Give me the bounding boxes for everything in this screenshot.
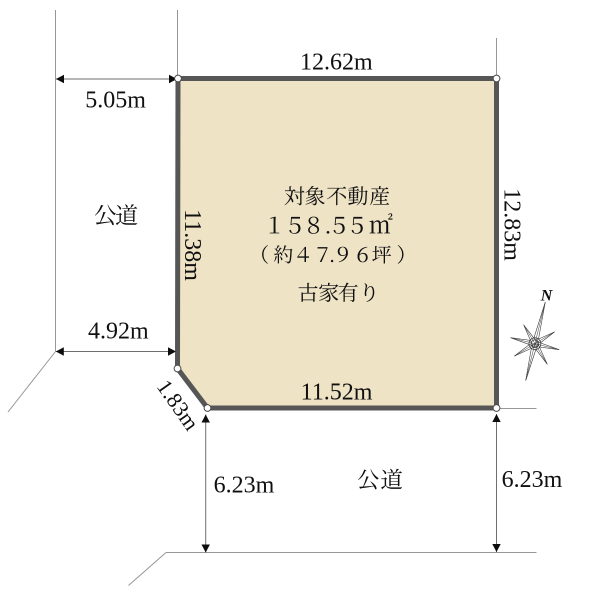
svg-text:4.92m: 4.92m <box>88 319 149 345</box>
svg-text:12.83m: 12.83m <box>499 188 525 261</box>
svg-text:N: N <box>540 288 554 305</box>
svg-text:6.23m: 6.23m <box>502 467 563 493</box>
svg-text:11.52m: 11.52m <box>301 380 373 406</box>
svg-text:11.38m: 11.38m <box>179 209 205 281</box>
svg-text:12.62m: 12.62m <box>300 50 373 76</box>
svg-text:5.05m: 5.05m <box>85 88 146 114</box>
svg-text:6.23m: 6.23m <box>214 473 275 499</box>
